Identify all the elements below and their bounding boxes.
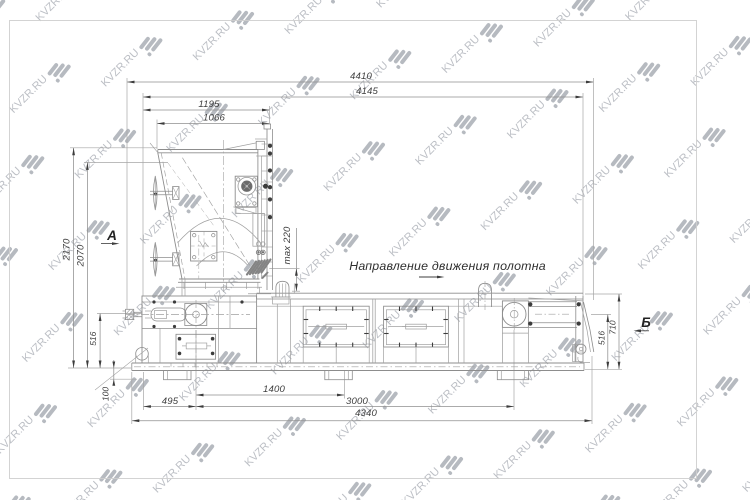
svg-text:3000: 3000 <box>346 396 368 407</box>
svg-text:710: 710 <box>608 320 618 334</box>
svg-text:Направление движения полотна: Направление движения полотна <box>349 259 546 273</box>
svg-text:1066: 1066 <box>203 113 225 124</box>
svg-text:495: 495 <box>162 396 179 407</box>
svg-text:100: 100 <box>100 387 110 401</box>
svg-text:516: 516 <box>597 331 607 345</box>
svg-text:4410: 4410 <box>350 71 372 82</box>
svg-text:2170: 2170 <box>62 238 73 261</box>
svg-text:Б: Б <box>641 315 651 330</box>
svg-text:А: А <box>106 228 117 243</box>
svg-text:1195: 1195 <box>198 99 220 110</box>
svg-text:1400: 1400 <box>263 384 285 395</box>
svg-text:max 220: max 220 <box>282 226 293 264</box>
svg-text:2070: 2070 <box>76 244 87 267</box>
svg-text:516: 516 <box>88 331 98 345</box>
svg-text:4340: 4340 <box>355 408 377 419</box>
svg-text:4145: 4145 <box>356 86 378 97</box>
